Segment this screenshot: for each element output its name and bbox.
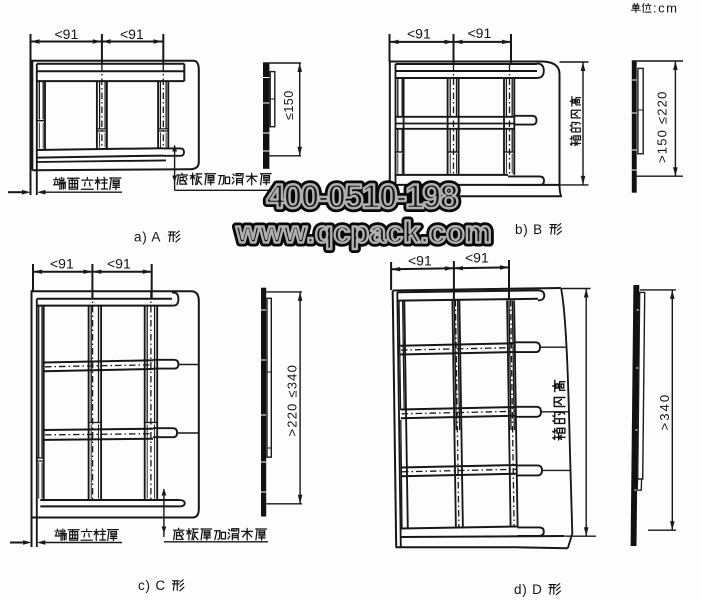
svg-text:<91: <91 <box>465 250 489 266</box>
svg-text:400-0510-198: 400-0510-198 <box>266 178 457 216</box>
svg-text:<91: <91 <box>407 26 431 42</box>
svg-text:>220 ≤340: >220 ≤340 <box>285 364 300 437</box>
svg-text:<91: <91 <box>55 26 79 42</box>
svg-text:c) C: c) C <box>138 578 166 593</box>
svg-text:>340: >340 <box>657 393 672 431</box>
svg-text:d) D: d) D <box>514 582 543 597</box>
svg-text:<91: <91 <box>50 256 74 272</box>
svg-text:≤150: ≤150 <box>282 90 296 120</box>
svg-text:<91: <91 <box>107 256 131 272</box>
svg-text:www.qcpack.com: www.qcpack.com <box>235 217 492 250</box>
svg-text:<91: <91 <box>468 25 492 41</box>
svg-text:<91: <91 <box>120 26 144 42</box>
svg-text:>150 ≤220: >150 ≤220 <box>655 90 670 163</box>
svg-text:b) B: b) B <box>515 222 543 237</box>
svg-text::cm: :cm <box>653 1 678 16</box>
svg-text:a) A: a) A <box>134 229 161 244</box>
svg-text:<91: <91 <box>408 253 432 269</box>
